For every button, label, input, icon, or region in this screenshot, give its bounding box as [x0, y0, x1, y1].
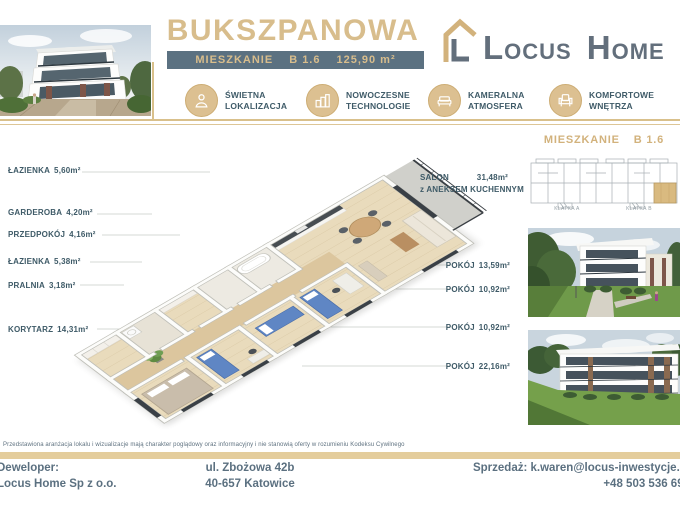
badge-label: MIESZKANIE — [195, 54, 273, 66]
feature-label: ATMOSFERA — [468, 101, 525, 111]
developer-name: Locus Home Sp z o.o. — [0, 478, 116, 490]
buildings-icon — [306, 84, 339, 117]
room-label-przedpokoj: PRZEDPOKÓJ4,16m² — [8, 230, 96, 239]
room-label-pralnia: PRALNIA3,18m² — [8, 281, 76, 290]
highlighted-unit — [654, 183, 676, 203]
feature-label: ŚWIETNA — [225, 90, 287, 100]
logo-text-locus: Locus — [483, 31, 572, 64]
feature-label: WNĘTRZA — [589, 101, 654, 111]
header-divider-thin — [0, 124, 680, 125]
unit-badge: MIESZKANIE B 1.6 125,90 m² — [167, 51, 424, 69]
badge-unit: B 1.6 — [289, 54, 320, 66]
room-label-lazienka-1: ŁAZIENKA5,60m² — [8, 166, 81, 175]
feature-label: LOKALIZACJA — [225, 101, 287, 111]
page-title: BUKSZPANOWA — [158, 14, 428, 48]
feature-label: KOMFORTOWE — [589, 90, 654, 100]
room-label-salon: SALON 31,48m² z ANEKSEM KUCHENNYM — [420, 173, 508, 194]
feature-location: ŚWIETNA LOKALIZACJA — [185, 84, 287, 117]
room-label-pokoj-4: POKÓJ22,16m² — [420, 362, 510, 371]
building-photo-1 — [528, 228, 680, 317]
building-photo-2 — [528, 330, 680, 425]
armchair-icon — [549, 84, 582, 117]
feature-label: NOWOCZESNE — [346, 90, 411, 100]
room-label-korytarz: KORYTARZ14,31m² — [8, 325, 88, 334]
feature-technology: NOWOCZESNE TECHNOLOGIE — [306, 84, 411, 117]
feature-label: KAMERALNA — [468, 90, 525, 100]
sidebar-unit-title: MIESZKANIE B 1.6 — [528, 134, 680, 146]
location-person-icon — [185, 84, 218, 117]
stairwell-b-label: KLATKA B — [617, 206, 661, 212]
room-label-lazienka-2: ŁAZIENKA5,38m² — [8, 257, 81, 266]
sofa-icon — [428, 84, 461, 117]
building-key-plan — [528, 155, 680, 213]
developer-label: Deweloper: — [0, 462, 59, 474]
room-label-pokoj-1: POKÓJ13,59m² — [420, 261, 510, 270]
house-icon — [441, 18, 477, 64]
address-street: ul. Zbożowa 42b — [170, 462, 330, 474]
header-divider-thick — [0, 119, 680, 121]
room-label-pokoj-3: POKÓJ10,92m² — [420, 323, 510, 332]
flyer-page: BUKSZPANOWA MIESZKANIE B 1.6 125,90 m² L… — [0, 0, 680, 510]
footer-gold-bar — [0, 452, 680, 459]
locus-home-logo: Locus Home — [441, 18, 665, 64]
room-label-pokoj-2: POKÓJ10,92m² — [420, 285, 510, 294]
feature-label: TECHNOLOGIE — [346, 101, 411, 111]
feature-atmosphere: KAMERALNA ATMOSFERA — [428, 84, 525, 117]
vertical-separator — [152, 62, 154, 119]
stairwell-a-label: KLATKA A — [545, 206, 589, 212]
disclaimer-text: Przedstawiona aranżacja lokalu i wizuali… — [3, 442, 405, 448]
sales-phone: +48 503 536 699 — [603, 478, 680, 490]
badge-area: 125,90 m² — [336, 54, 395, 66]
sales-email: Sprzedaż: k.waren@locus-inwestycje.pl — [473, 462, 680, 474]
logo-text-home: Home — [587, 31, 665, 64]
room-label-garderoba: GARDEROBA4,20m² — [8, 208, 93, 217]
address-city: 40-657 Katowice — [170, 478, 330, 490]
building-photo-top-left — [0, 25, 151, 116]
feature-interiors: KOMFORTOWE WNĘTRZA — [549, 84, 654, 117]
